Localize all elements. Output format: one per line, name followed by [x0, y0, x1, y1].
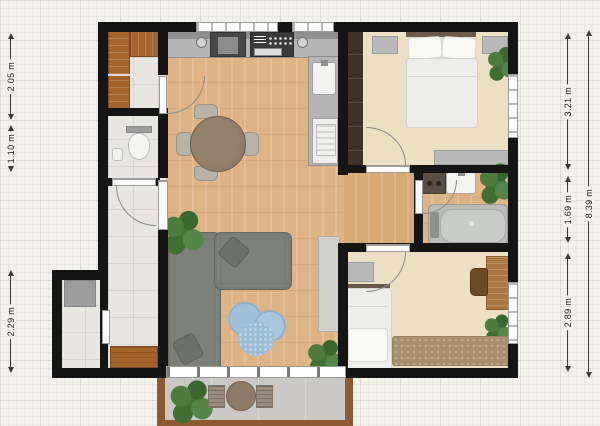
- single-bed[interactable]: [344, 284, 390, 368]
- wall-living-bedroom2: [338, 243, 348, 378]
- bedroom2-rug[interactable]: [392, 336, 510, 366]
- wardrobe-left[interactable]: [108, 30, 130, 110]
- balcony-chair-right[interactable]: [256, 385, 273, 408]
- bedroom1-wardrobe[interactable]: [348, 30, 363, 168]
- nightstand-left[interactable]: [372, 36, 398, 54]
- dining-chair-west[interactable]: [176, 132, 191, 156]
- living-entry-door[interactable]: [158, 180, 168, 230]
- bathroom-door[interactable]: [415, 180, 423, 214]
- arrow-down-icon: [565, 237, 571, 243]
- balcony-trim-right: [345, 378, 353, 426]
- arrow-down-icon: [565, 164, 571, 170]
- living-window[interactable]: [292, 22, 334, 32]
- dimension-right-1: 3.21 m: [562, 33, 574, 170]
- kitchen-knob-right: [297, 37, 308, 48]
- bedroom1-window[interactable]: [508, 74, 518, 138]
- arrow-up-icon: [565, 176, 571, 182]
- oven-control-panel[interactable]: [250, 32, 294, 57]
- wall-toilet-right: [158, 112, 168, 178]
- dimension-left-3: 2.29 m: [5, 270, 17, 373]
- toilet-tank: [126, 126, 152, 133]
- dishwasher[interactable]: [312, 118, 338, 164]
- arrow-down-icon: [565, 366, 571, 372]
- arrow-down-icon: [8, 166, 14, 172]
- dimension-label: 2.89 m: [563, 295, 573, 330]
- wardrobe-divider: [108, 74, 130, 76]
- desk-chair[interactable]: [470, 268, 488, 296]
- arrow-up-icon: [565, 253, 571, 259]
- balcony-trim-left: [157, 378, 165, 426]
- balcony-sliding-door[interactable]: [166, 366, 346, 378]
- washing-machine[interactable]: [64, 280, 96, 307]
- wall-closet-right-upper: [158, 22, 168, 75]
- wardrobe-top[interactable]: [130, 30, 161, 57]
- dimension-label: 1.10 m: [6, 131, 16, 166]
- toilet[interactable]: [128, 133, 150, 160]
- arrow-down-icon: [8, 367, 14, 373]
- arrow-up-icon: [565, 33, 571, 39]
- kitchen-knob-left: [196, 37, 207, 48]
- dimension-label: 1.69 m: [563, 192, 573, 227]
- dimension-right-2: 1.69 m: [562, 176, 574, 243]
- bedroom2-door[interactable]: [366, 244, 410, 252]
- bedroom1-door[interactable]: [366, 165, 410, 173]
- doormat[interactable]: [110, 346, 158, 368]
- arrow-down-icon: [586, 372, 592, 378]
- balcony-table[interactable]: [226, 381, 256, 411]
- arrow-down-icon: [8, 114, 14, 120]
- wall-hall-living: [158, 230, 168, 378]
- wall-annex-left: [52, 270, 62, 378]
- hallway-floor: [342, 171, 418, 247]
- wall-living-bedroom1: [338, 22, 348, 175]
- arrow-up-icon: [586, 30, 592, 36]
- dimension-left-1: 2.05 m: [5, 33, 17, 120]
- dimension-label: 8.39 m: [584, 186, 594, 221]
- double-bed[interactable]: [406, 32, 476, 126]
- balcony-chair-left[interactable]: [208, 385, 225, 408]
- annex-door[interactable]: [102, 310, 110, 344]
- arrow-up-icon: [8, 270, 14, 276]
- cooktop[interactable]: [210, 32, 246, 57]
- dimension-left-2: 1.10 m: [5, 125, 17, 172]
- dimension-right-3: 2.89 m: [562, 253, 574, 372]
- closet-door[interactable]: [159, 76, 167, 114]
- dimension-label: 3.21 m: [563, 84, 573, 119]
- bedroom2-window[interactable]: [508, 282, 518, 344]
- wall-bedroom1-bottom: [338, 165, 518, 173]
- sideboard[interactable]: [318, 236, 340, 332]
- wall-bedroom2-top: [338, 243, 518, 252]
- toilet-room-sink[interactable]: [112, 148, 123, 161]
- desk[interactable]: [486, 256, 510, 310]
- arrow-up-icon: [8, 33, 14, 39]
- dining-chair-east[interactable]: [244, 132, 259, 156]
- kitchen-window[interactable]: [196, 22, 278, 32]
- bathtub[interactable]: [428, 204, 508, 245]
- kitchen-sink[interactable]: [312, 62, 336, 95]
- dimension-right-total: 8.39 m: [583, 30, 595, 378]
- rug-cloud-3[interactable]: [238, 322, 274, 356]
- wall-left-upper: [98, 22, 108, 280]
- dining-table[interactable]: [190, 116, 246, 172]
- toilet-sliding-door[interactable]: [112, 178, 156, 186]
- dimension-label: 2.29 m: [6, 304, 16, 339]
- dimension-label: 2.05 m: [6, 59, 16, 94]
- floorplan-canvas: 2.05 m 1.10 m 2.29 m 3.21 m 1.69 m 2.89 …: [0, 0, 600, 426]
